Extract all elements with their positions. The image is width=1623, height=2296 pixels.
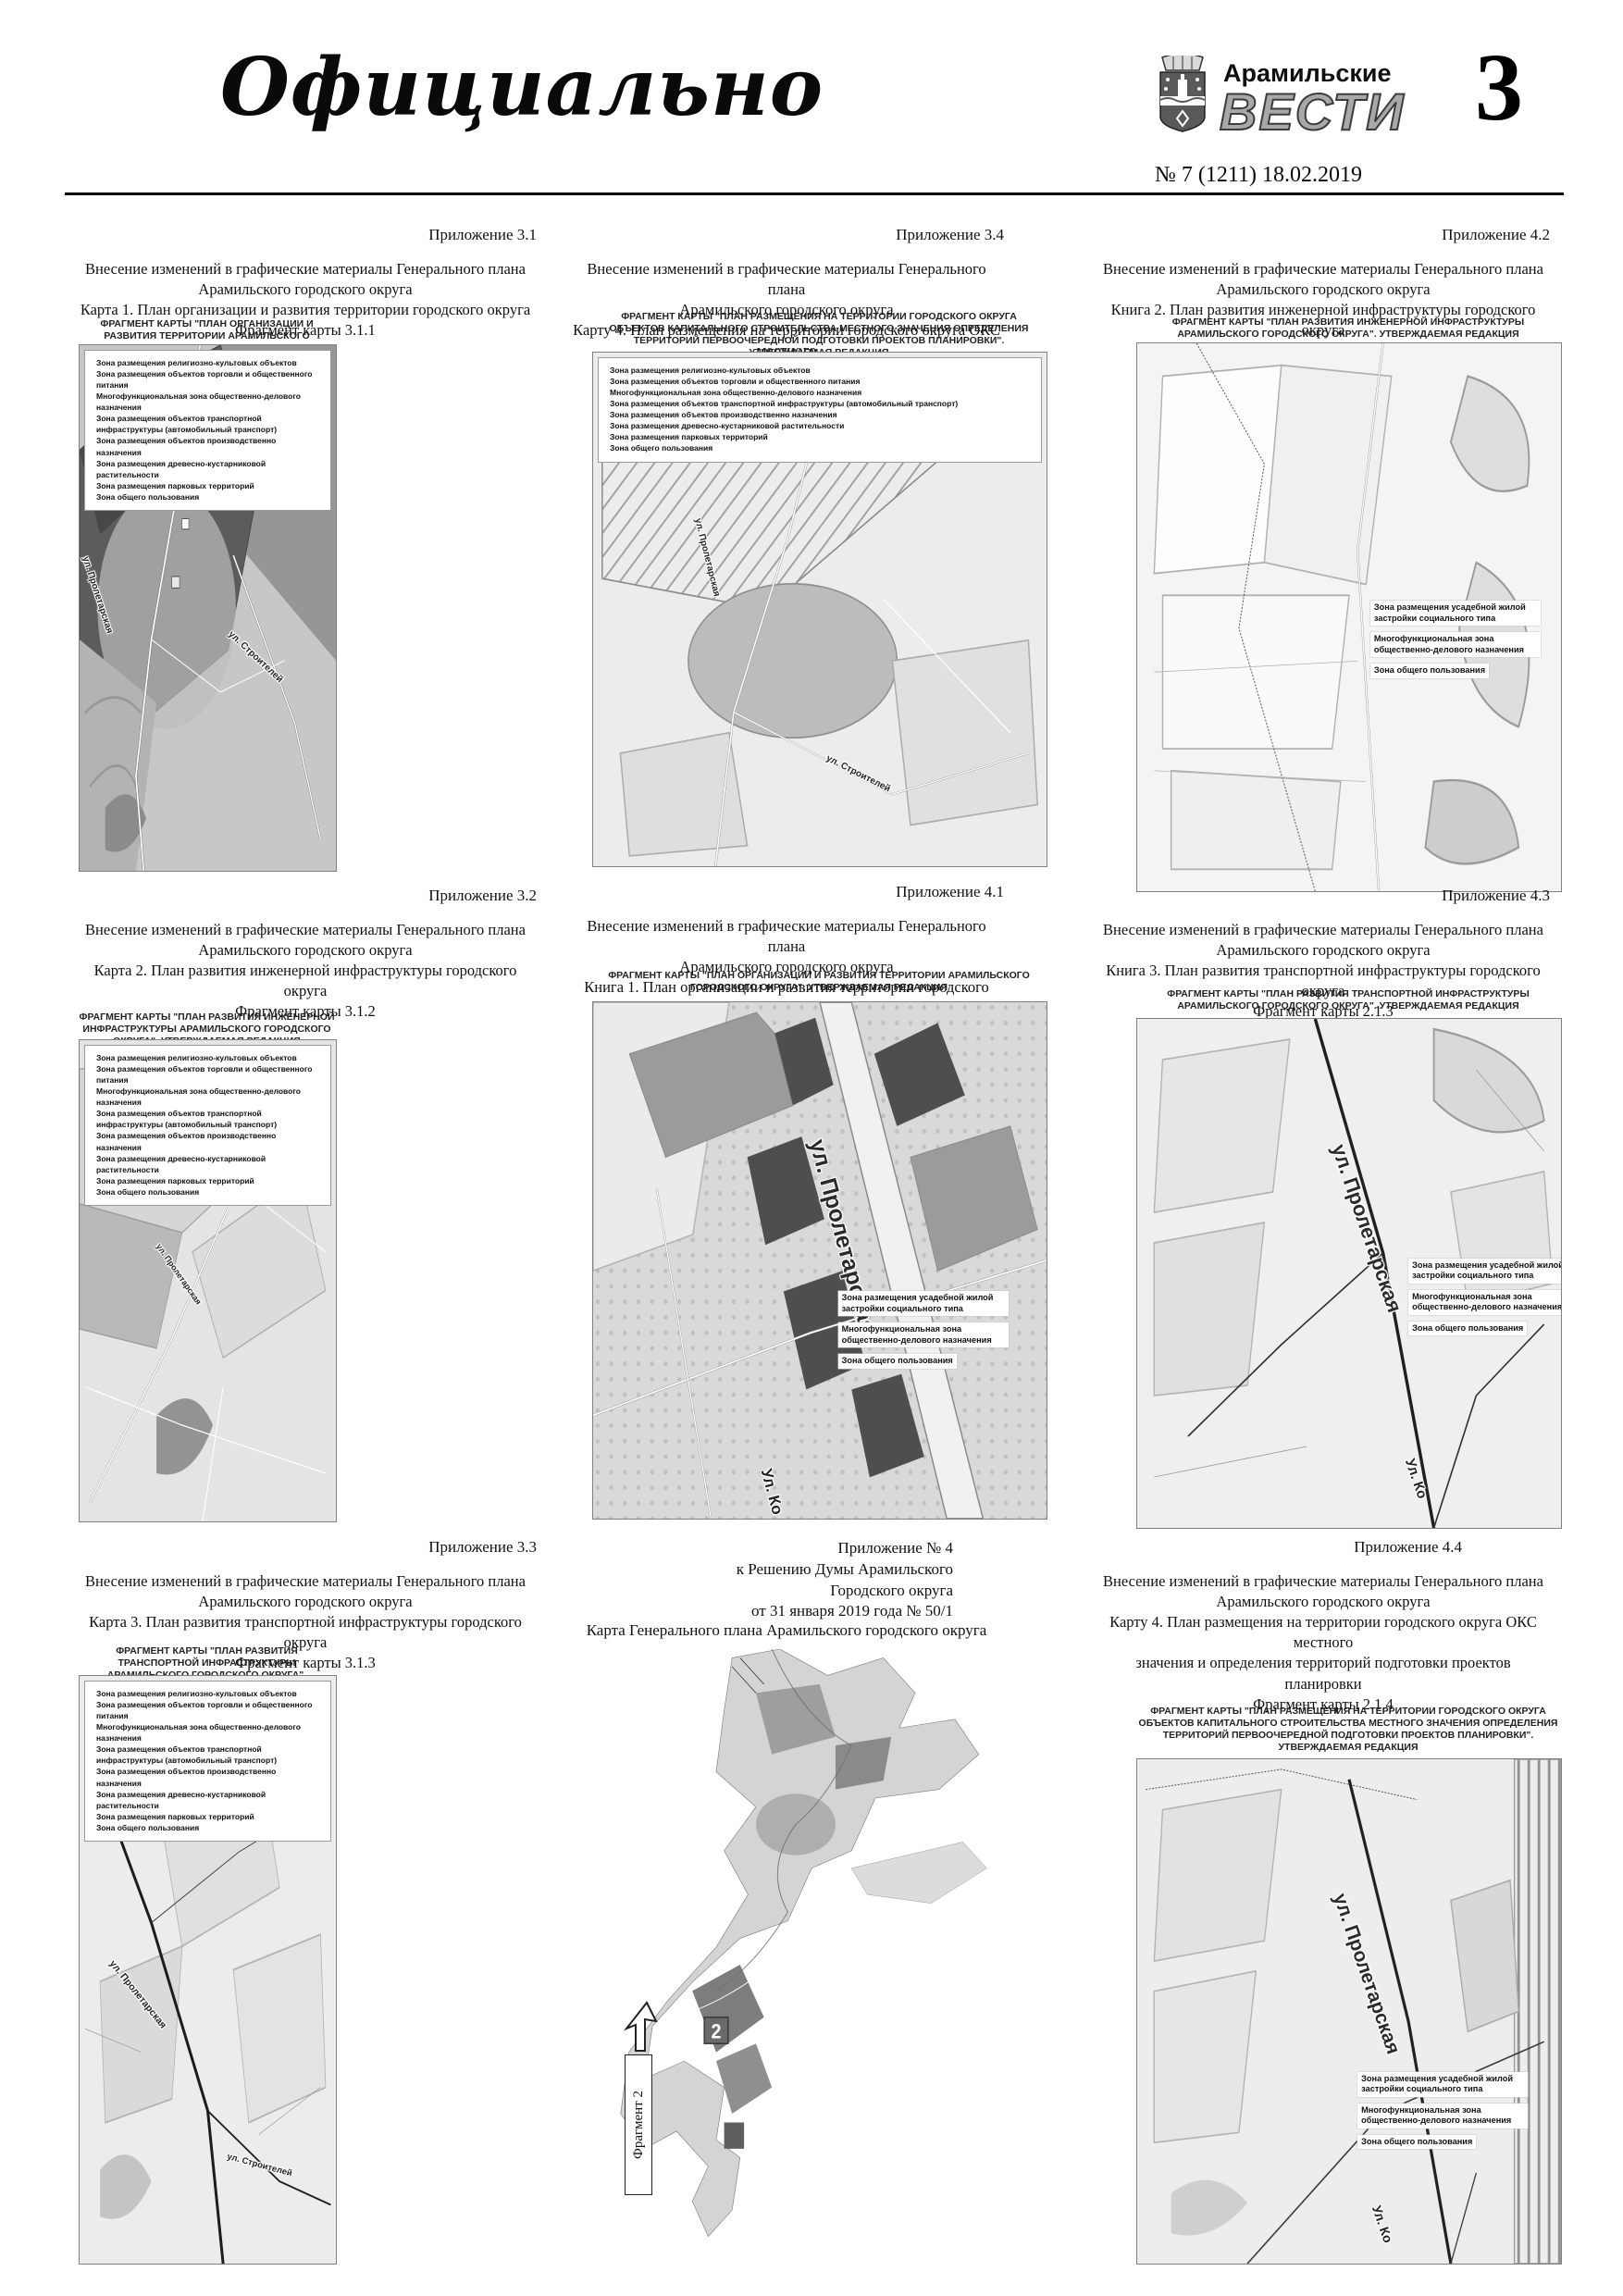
legend-item: Многофункциональная зона общественно-дел… xyxy=(96,1721,321,1744)
reference-line: Городского округа xyxy=(555,1581,953,1602)
title-line: Карта 1. План организации и развития тер… xyxy=(74,300,537,320)
legend-item: Зона размещения парковых территорий xyxy=(96,1811,321,1822)
map-legend: Зона размещения религиозно-культовых объ… xyxy=(84,1045,331,1206)
appendix-label: Приложение 4.2 xyxy=(1096,226,1550,244)
legend-item: Зона размещения религиозно-культовых объ… xyxy=(610,365,1032,376)
fragment-flag: Фрагмент 2 xyxy=(625,2054,652,2195)
map-figure-3-1-1: Зона размещения религиозно-культовых объ… xyxy=(79,344,337,872)
title-line: Внесение изменений в графические материа… xyxy=(74,259,537,279)
title-line: Внесение изменений в графические материа… xyxy=(1096,259,1550,279)
map-figure-2-1-2: Зона размещения усадебной жилой застройк… xyxy=(1136,342,1562,892)
legend-item: Зона общего пользования xyxy=(96,1822,321,1833)
legend-item: Многофункциональная зона общественно-дел… xyxy=(96,391,321,413)
legend-item: Зона размещения парковых территорий xyxy=(96,480,321,491)
reference-line: к Решению Думы Арамильского xyxy=(555,1559,953,1581)
legend-item: Зона размещения древесно-кустарниковой р… xyxy=(610,420,1032,431)
legend-item: Зона размещения религиозно-культовых объ… xyxy=(96,357,321,368)
legend-item: Зона общего пользования xyxy=(1370,664,1489,678)
legend-item: Зона размещения древесно-кустарниковой р… xyxy=(96,1153,321,1175)
title-line: Внесение изменений в графические материа… xyxy=(74,920,537,940)
legend-item: Зона общего пользования xyxy=(1408,1322,1527,1336)
article-title: Внесение изменений в графические материа… xyxy=(74,920,537,1023)
legend-item: Многофункциональная зона общественно-дел… xyxy=(610,387,1032,398)
legend-item: Зона размещения объектов производственно… xyxy=(96,1766,321,1788)
appendix-label: Приложение 3.3 xyxy=(74,1538,537,1557)
legend-item: Зона размещения объектов торговли и обще… xyxy=(96,1699,321,1721)
legend-item: Зона размещения древесно-кустарниковой р… xyxy=(96,1789,321,1811)
reference-line: Приложение № 4 xyxy=(555,1538,953,1559)
legend-item: Многофункциональная зона общественно-дел… xyxy=(1370,632,1541,657)
article-block-3-2: Приложение 3.2 Внесение изменений в граф… xyxy=(74,887,537,1023)
appendix-label: Приложение 3.4 xyxy=(569,226,1004,244)
map-figure-3-1-3: Зона размещения религиозно-культовых объ… xyxy=(79,1675,337,2265)
title-line: Арамильского городского округа xyxy=(74,279,537,300)
legend-item: Зона общего пользования xyxy=(96,491,321,503)
appendix-label: Приложение 4.4 xyxy=(1096,1538,1550,1557)
legend-item: Зона общего пользования xyxy=(838,1354,957,1369)
fragment-flag-label: Фрагмент 2 xyxy=(631,2091,647,2159)
map-figure-2-1-1: ул. Пролетарская Ул. Ко Зона размещения … xyxy=(592,1001,1047,1520)
fragment-arrow-icon xyxy=(621,1999,669,2053)
legend-item: Многофункциональная зона общественно-дел… xyxy=(96,1086,321,1108)
legend-item: Зона размещения древесно-кустарниковой р… xyxy=(96,458,321,480)
article-block-4-4: Приложение 4.4 Внесение изменений в граф… xyxy=(1096,1538,1550,1715)
callout-legend: Зона размещения усадебной жилой застройк… xyxy=(1357,2072,1526,2156)
map-figure-2-1-3: ул. Пролетарская Ул. Ко Зона размещения … xyxy=(1136,1018,1562,1529)
legend-item: Зона размещения объектов торговли и обще… xyxy=(610,376,1032,387)
legend-item: Зона размещения религиозно-культовых объ… xyxy=(96,1688,321,1699)
title-line: Внесение изменений в графические материа… xyxy=(569,916,1004,957)
legend-item: Многофункциональная зона общественно-дел… xyxy=(838,1322,1009,1347)
oks-map-graphic xyxy=(1137,1759,1561,2264)
map-figure-3-1-4: Зона размещения религиозно-культовых объ… xyxy=(592,352,1047,867)
brand-name-main: ВЕСТИ xyxy=(1220,87,1406,136)
title-line: Арамильского городского округа xyxy=(1096,279,1550,300)
legend-item: Зона размещения парковых территорий xyxy=(610,431,1032,442)
callout-legend: Зона размещения усадебной жилой застройк… xyxy=(838,1291,1007,1375)
masthead-title: Официально xyxy=(220,48,824,128)
map-figure-3-1-2: Зона размещения религиозно-культовых объ… xyxy=(79,1039,337,1522)
issue-line: № 7 (1211) 18.02.2019 xyxy=(1155,163,1362,188)
map-caption: ФРАГМЕНТ КАРТЫ "ПЛАН РАЗВИТИЯ ИНЖЕНЕРНОЙ… xyxy=(1136,316,1560,341)
legend-item: Зона размещения объектов транспортной ин… xyxy=(96,413,321,435)
title-line: Арамильского городского округа xyxy=(1096,1592,1550,1612)
zoning-map-graphic xyxy=(593,1002,1047,1519)
map-caption: ФРАГМЕНТ КАРТЫ "ПЛАН РАЗВИТИЯ ТРАНСПОРТН… xyxy=(1136,988,1560,1012)
newspaper-page: Официально Арамильские ВЕСТИ № 7 (1211) … xyxy=(0,0,1623,2296)
title-line: Карта 2. План развития инженерной инфрас… xyxy=(74,961,537,1001)
general-plan-map-title: Карта Генерального плана Арамильского го… xyxy=(555,1621,1018,1640)
appendix-label: Приложение 3.1 xyxy=(74,226,537,244)
legend-item: Зона размещения объектов производственно… xyxy=(96,1130,321,1152)
callout-legend: Зона размещения усадебной жилой застройк… xyxy=(1370,601,1539,685)
title-line: Арамильского городского округа xyxy=(74,1592,537,1612)
article-block-appendix-4: Приложение № 4к Решению Думы Арамильског… xyxy=(555,1538,953,1622)
map-legend: Зона размещения религиозно-культовых объ… xyxy=(598,357,1042,463)
callout-legend: Зона размещения усадебной жилой застройк… xyxy=(1408,1259,1562,1343)
appendix-label: Приложение 4.1 xyxy=(569,883,1004,901)
legend-item: Зона общего пользования xyxy=(610,442,1032,453)
legend-item: Зона общего пользования xyxy=(1357,2135,1476,2150)
title-line: Внесение изменений в графические материа… xyxy=(1096,1571,1550,1592)
legend-item: Зона общего пользования xyxy=(96,1186,321,1198)
legend-item: Зона размещения объектов транспортной ин… xyxy=(96,1744,321,1766)
appendix-label: Приложение 3.2 xyxy=(74,887,537,905)
title-line: Внесение изменений в графические материа… xyxy=(1096,920,1550,940)
legend-item: Зона размещения объектов торговли и обще… xyxy=(96,368,321,391)
legend-item: Многофункциональная зона общественно-дел… xyxy=(1357,2104,1528,2128)
title-line: Внесение изменений в графические материа… xyxy=(569,259,1004,300)
coat-of-arms-icon xyxy=(1153,56,1212,133)
legend-item: Зона размещения объектов транспортной ин… xyxy=(96,1108,321,1130)
title-line: Карту 4. План размещения на территории г… xyxy=(1096,1612,1550,1653)
legend-item: Зона размещения объектов производственно… xyxy=(610,409,1032,420)
map-caption: ФРАГМЕНТ КАРТЫ "ПЛАН РАЗМЕЩЕНИЯ НА ТЕРРИ… xyxy=(1136,1706,1560,1755)
map-legend: Зона размещения религиозно-культовых объ… xyxy=(84,1681,331,1842)
decision-reference: Приложение № 4к Решению Думы Арамильског… xyxy=(555,1538,953,1622)
legend-item: Зона размещения объектов транспортной ин… xyxy=(610,398,1032,409)
legend-item: Зона размещения религиозно-культовых объ… xyxy=(96,1052,321,1063)
legend-item: Зона размещения объектов производственно… xyxy=(96,435,321,457)
legend-item: Многофункциональная зона общественно-дел… xyxy=(1408,1290,1562,1315)
appendix-label: Приложение 4.3 xyxy=(1096,887,1550,905)
header-rule xyxy=(65,192,1564,195)
title-line: Арамильского городского округа xyxy=(1096,940,1550,961)
title-line: значения и определения территорий подгот… xyxy=(1096,1653,1550,1694)
page-number: 3 xyxy=(1475,44,1523,131)
legend-item: Зона размещения усадебной жилой застройк… xyxy=(838,1291,1009,1316)
fragment-marker: 2 xyxy=(711,2021,721,2043)
map-figure-2-1-4: ул. Пролетарская Ул. Ко Зона размещения … xyxy=(1136,1758,1562,2265)
legend-item: Зона размещения усадебной жилой застройк… xyxy=(1357,2072,1528,2097)
reference-line: от 31 января 2019 года № 50/1 xyxy=(555,1601,953,1622)
general-plan-map-graphic: 2 xyxy=(597,1649,995,2263)
map-legend: Зона размещения религиозно-культовых объ… xyxy=(84,350,331,511)
title-line: Внесение изменений в графические материа… xyxy=(74,1571,537,1592)
city-map-silhouette: 2 Фрагмент 2 xyxy=(597,1649,995,2263)
article-title: Внесение изменений в графические материа… xyxy=(1096,1571,1550,1715)
legend-item: Зона размещения объектов торговли и обще… xyxy=(96,1063,321,1086)
title-line: Арамильского городского округа xyxy=(74,940,537,961)
legend-item: Зона размещения усадебной жилой застройк… xyxy=(1408,1259,1562,1284)
article-block-4-2: Приложение 4.2 Внесение изменений в граф… xyxy=(1096,226,1550,362)
legend-item: Зона размещения усадебной жилой застройк… xyxy=(1370,601,1541,626)
map-caption: ФРАГМЕНТ КАРТЫ "ПЛАН ОРГАНИЗАЦИИ И РАЗВИ… xyxy=(592,970,1046,994)
legend-item: Зона размещения парковых территорий xyxy=(96,1175,321,1186)
